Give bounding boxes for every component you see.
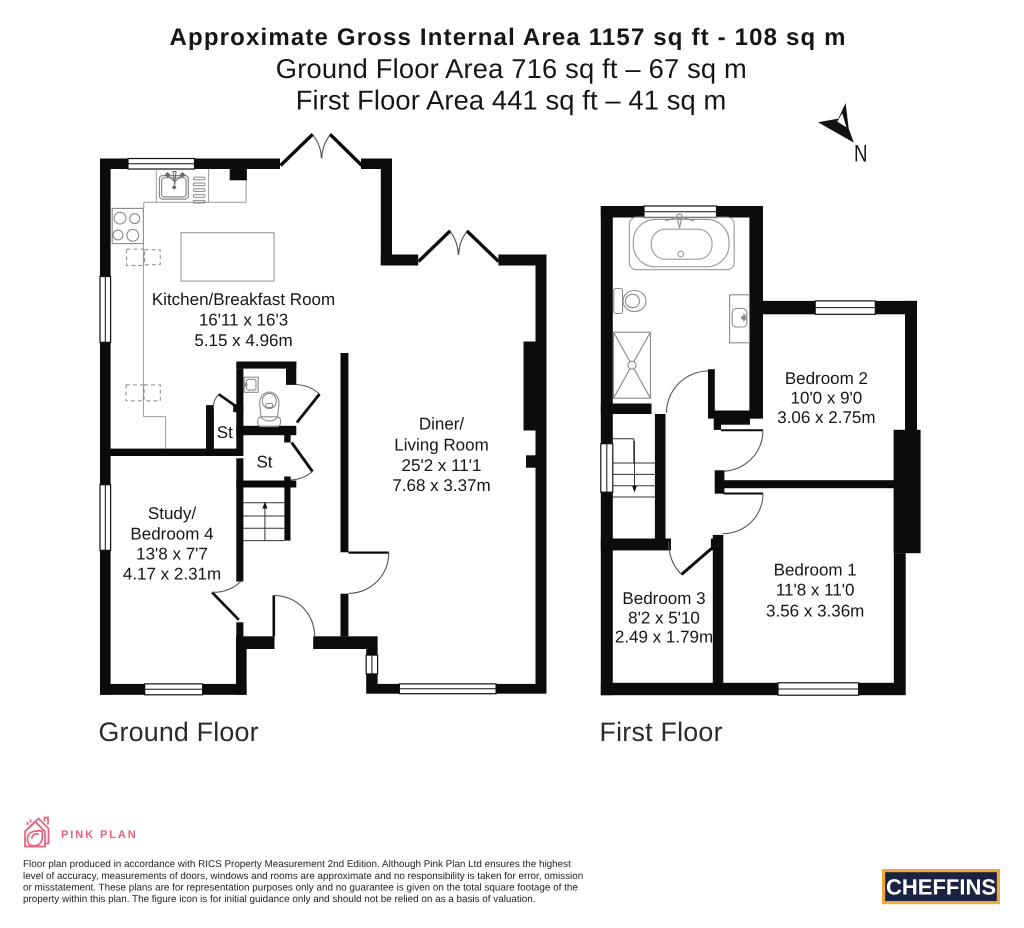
svg-text:N: N xyxy=(854,140,868,167)
svg-text:PINK PLAN: PINK PLAN xyxy=(61,829,138,841)
svg-text:Ground Floor: Ground Floor xyxy=(99,717,259,747)
svg-text:Approximate Gross Internal Are: Approximate Gross Internal Area 1157 sq … xyxy=(170,24,846,51)
svg-text:First Floor Area 441 sq ft – 4: First Floor Area 441 sq ft – 41 sq m xyxy=(296,85,727,116)
svg-text:11'8 x 11'0: 11'8 x 11'0 xyxy=(776,580,855,599)
svg-text:13'8 x 7'7: 13'8 x 7'7 xyxy=(136,545,208,564)
svg-text:St: St xyxy=(217,423,233,442)
svg-text:St: St xyxy=(256,453,272,472)
svg-text:property within this plan. The: property within this plan. The figure ic… xyxy=(23,894,536,905)
svg-text:Bedroom 2: Bedroom 2 xyxy=(785,369,868,388)
svg-text:3.56 x 3.36m: 3.56 x 3.36m xyxy=(766,601,864,620)
svg-text:or misstatement. These plans a: or misstatement. These plans are for rep… xyxy=(23,882,578,893)
svg-text:CHEFFINS: CHEFFINS xyxy=(886,875,996,900)
svg-text:4.17 x 2.31m: 4.17 x 2.31m xyxy=(123,564,221,583)
svg-text:Diner/: Diner/ xyxy=(419,414,465,433)
svg-text:Living Room: Living Room xyxy=(394,436,489,455)
svg-text:7.68 x 3.37m: 7.68 x 3.37m xyxy=(392,476,490,495)
svg-text:16'11 x 16'3: 16'11 x 16'3 xyxy=(199,311,288,330)
svg-text:Bedroom 1: Bedroom 1 xyxy=(774,561,857,580)
svg-text:Floor plan produced in accorda: Floor plan produced in accordance with R… xyxy=(23,859,571,870)
svg-text:First Floor: First Floor xyxy=(600,717,723,747)
svg-text:10'0 x 9'0: 10'0 x 9'0 xyxy=(791,388,863,407)
svg-text:level of accuracy, measurement: level of accuracy, measurements of doors… xyxy=(23,871,583,882)
svg-text:Bedroom 4: Bedroom 4 xyxy=(130,524,213,543)
svg-text:25'2 x 11'1: 25'2 x 11'1 xyxy=(402,456,482,475)
svg-text:Kitchen/Breakfast Room: Kitchen/Breakfast Room xyxy=(152,290,335,309)
svg-text:Study/: Study/ xyxy=(148,504,196,523)
svg-text:Ground Floor Area 716 sq ft –: Ground Floor Area 716 sq ft – 67 sq m xyxy=(276,53,747,84)
svg-text:2.49 x 1.79m: 2.49 x 1.79m xyxy=(615,628,713,647)
svg-text:8'2 x 5'10: 8'2 x 5'10 xyxy=(628,608,700,627)
svg-text:3.06 x 2.75m: 3.06 x 2.75m xyxy=(777,408,875,427)
svg-text:5.15 x 4.96m: 5.15 x 4.96m xyxy=(194,331,292,350)
svg-text:Bedroom 3: Bedroom 3 xyxy=(622,589,705,608)
